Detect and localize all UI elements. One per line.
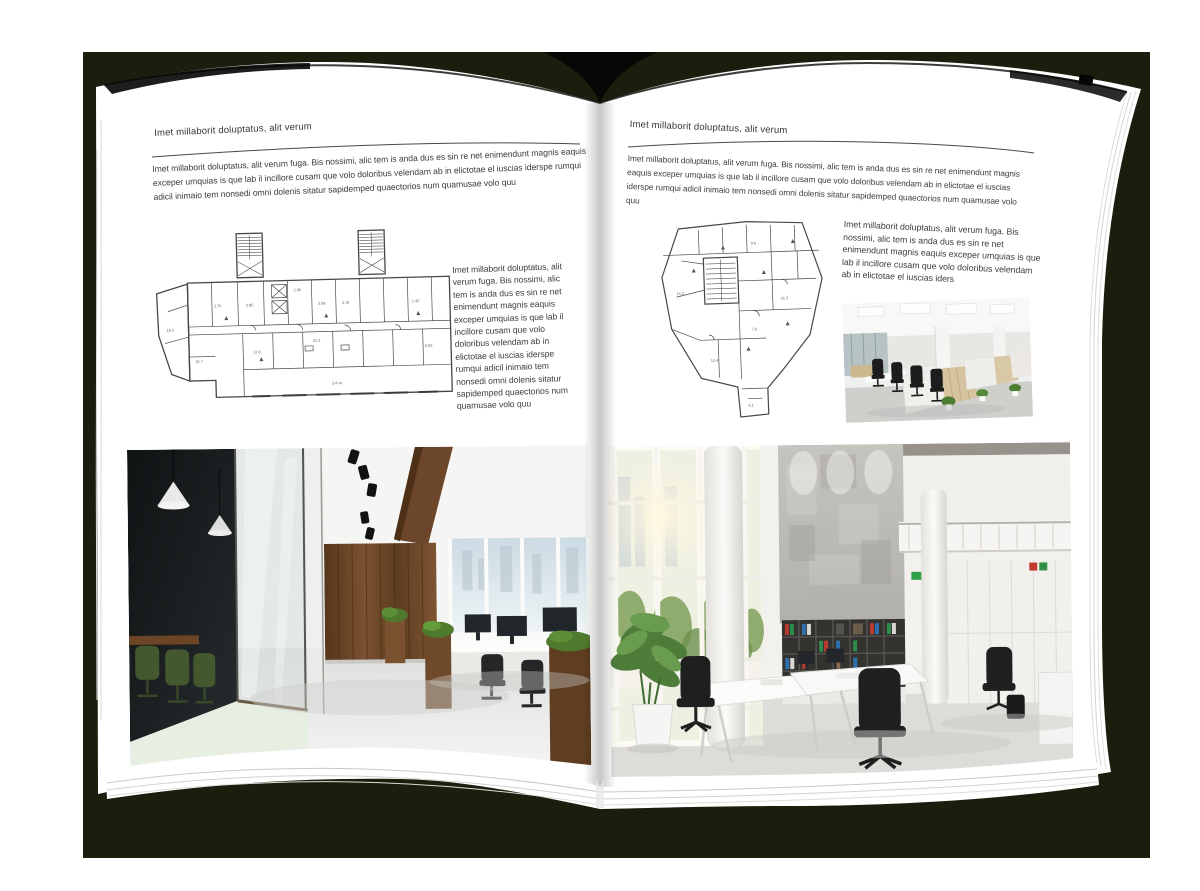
room-label: 3.76 bbox=[342, 301, 349, 305]
floor-plan-right: 14.2 9.6 21.3 7.8 12.4 5.1 bbox=[650, 216, 841, 424]
right-caption: Imet millaborit doluptatus, alit verum f… bbox=[841, 218, 1044, 290]
left-caption: Imet millaborit doluptatus, alit verum f… bbox=[452, 260, 575, 413]
meeting-room-glass bbox=[127, 449, 238, 742]
round-column bbox=[920, 489, 948, 703]
photo-office-small bbox=[842, 297, 1033, 422]
room-label: 14.2 bbox=[676, 292, 684, 296]
room-label: 9.6 bbox=[751, 241, 756, 245]
room-label: 3.09 bbox=[318, 301, 325, 305]
room-label: 12.8 bbox=[253, 350, 260, 354]
room-label: 2.95 bbox=[294, 288, 301, 292]
room-label: 2-й эт. bbox=[332, 381, 343, 385]
mezzanine bbox=[903, 442, 1070, 456]
room-label: 21.3 bbox=[781, 296, 789, 300]
room-label: 2.75 bbox=[214, 304, 221, 308]
room-label: 24.7 bbox=[195, 360, 202, 364]
room-label: 2.85 bbox=[246, 303, 253, 307]
room-label: 5.82 bbox=[425, 344, 432, 348]
room-label: 7.8 bbox=[752, 327, 757, 331]
magazine-mockup-stage: Imet millaborit doluptatus, alit verum I… bbox=[0, 0, 1200, 891]
room-label: 12.4 bbox=[711, 359, 719, 363]
room-label: 41.2 bbox=[313, 339, 320, 343]
floor-plan-left: 2.75 2.85 2.95 3.09 3.76 1.43 5.82 24.7 … bbox=[152, 224, 457, 420]
room-label: 5.1 bbox=[748, 403, 753, 407]
room-label: 18.3 bbox=[167, 328, 174, 332]
photo-office-bright bbox=[608, 442, 1073, 777]
room-label: 1.43 bbox=[412, 299, 419, 303]
photo-office-dark-wood bbox=[127, 445, 591, 772]
